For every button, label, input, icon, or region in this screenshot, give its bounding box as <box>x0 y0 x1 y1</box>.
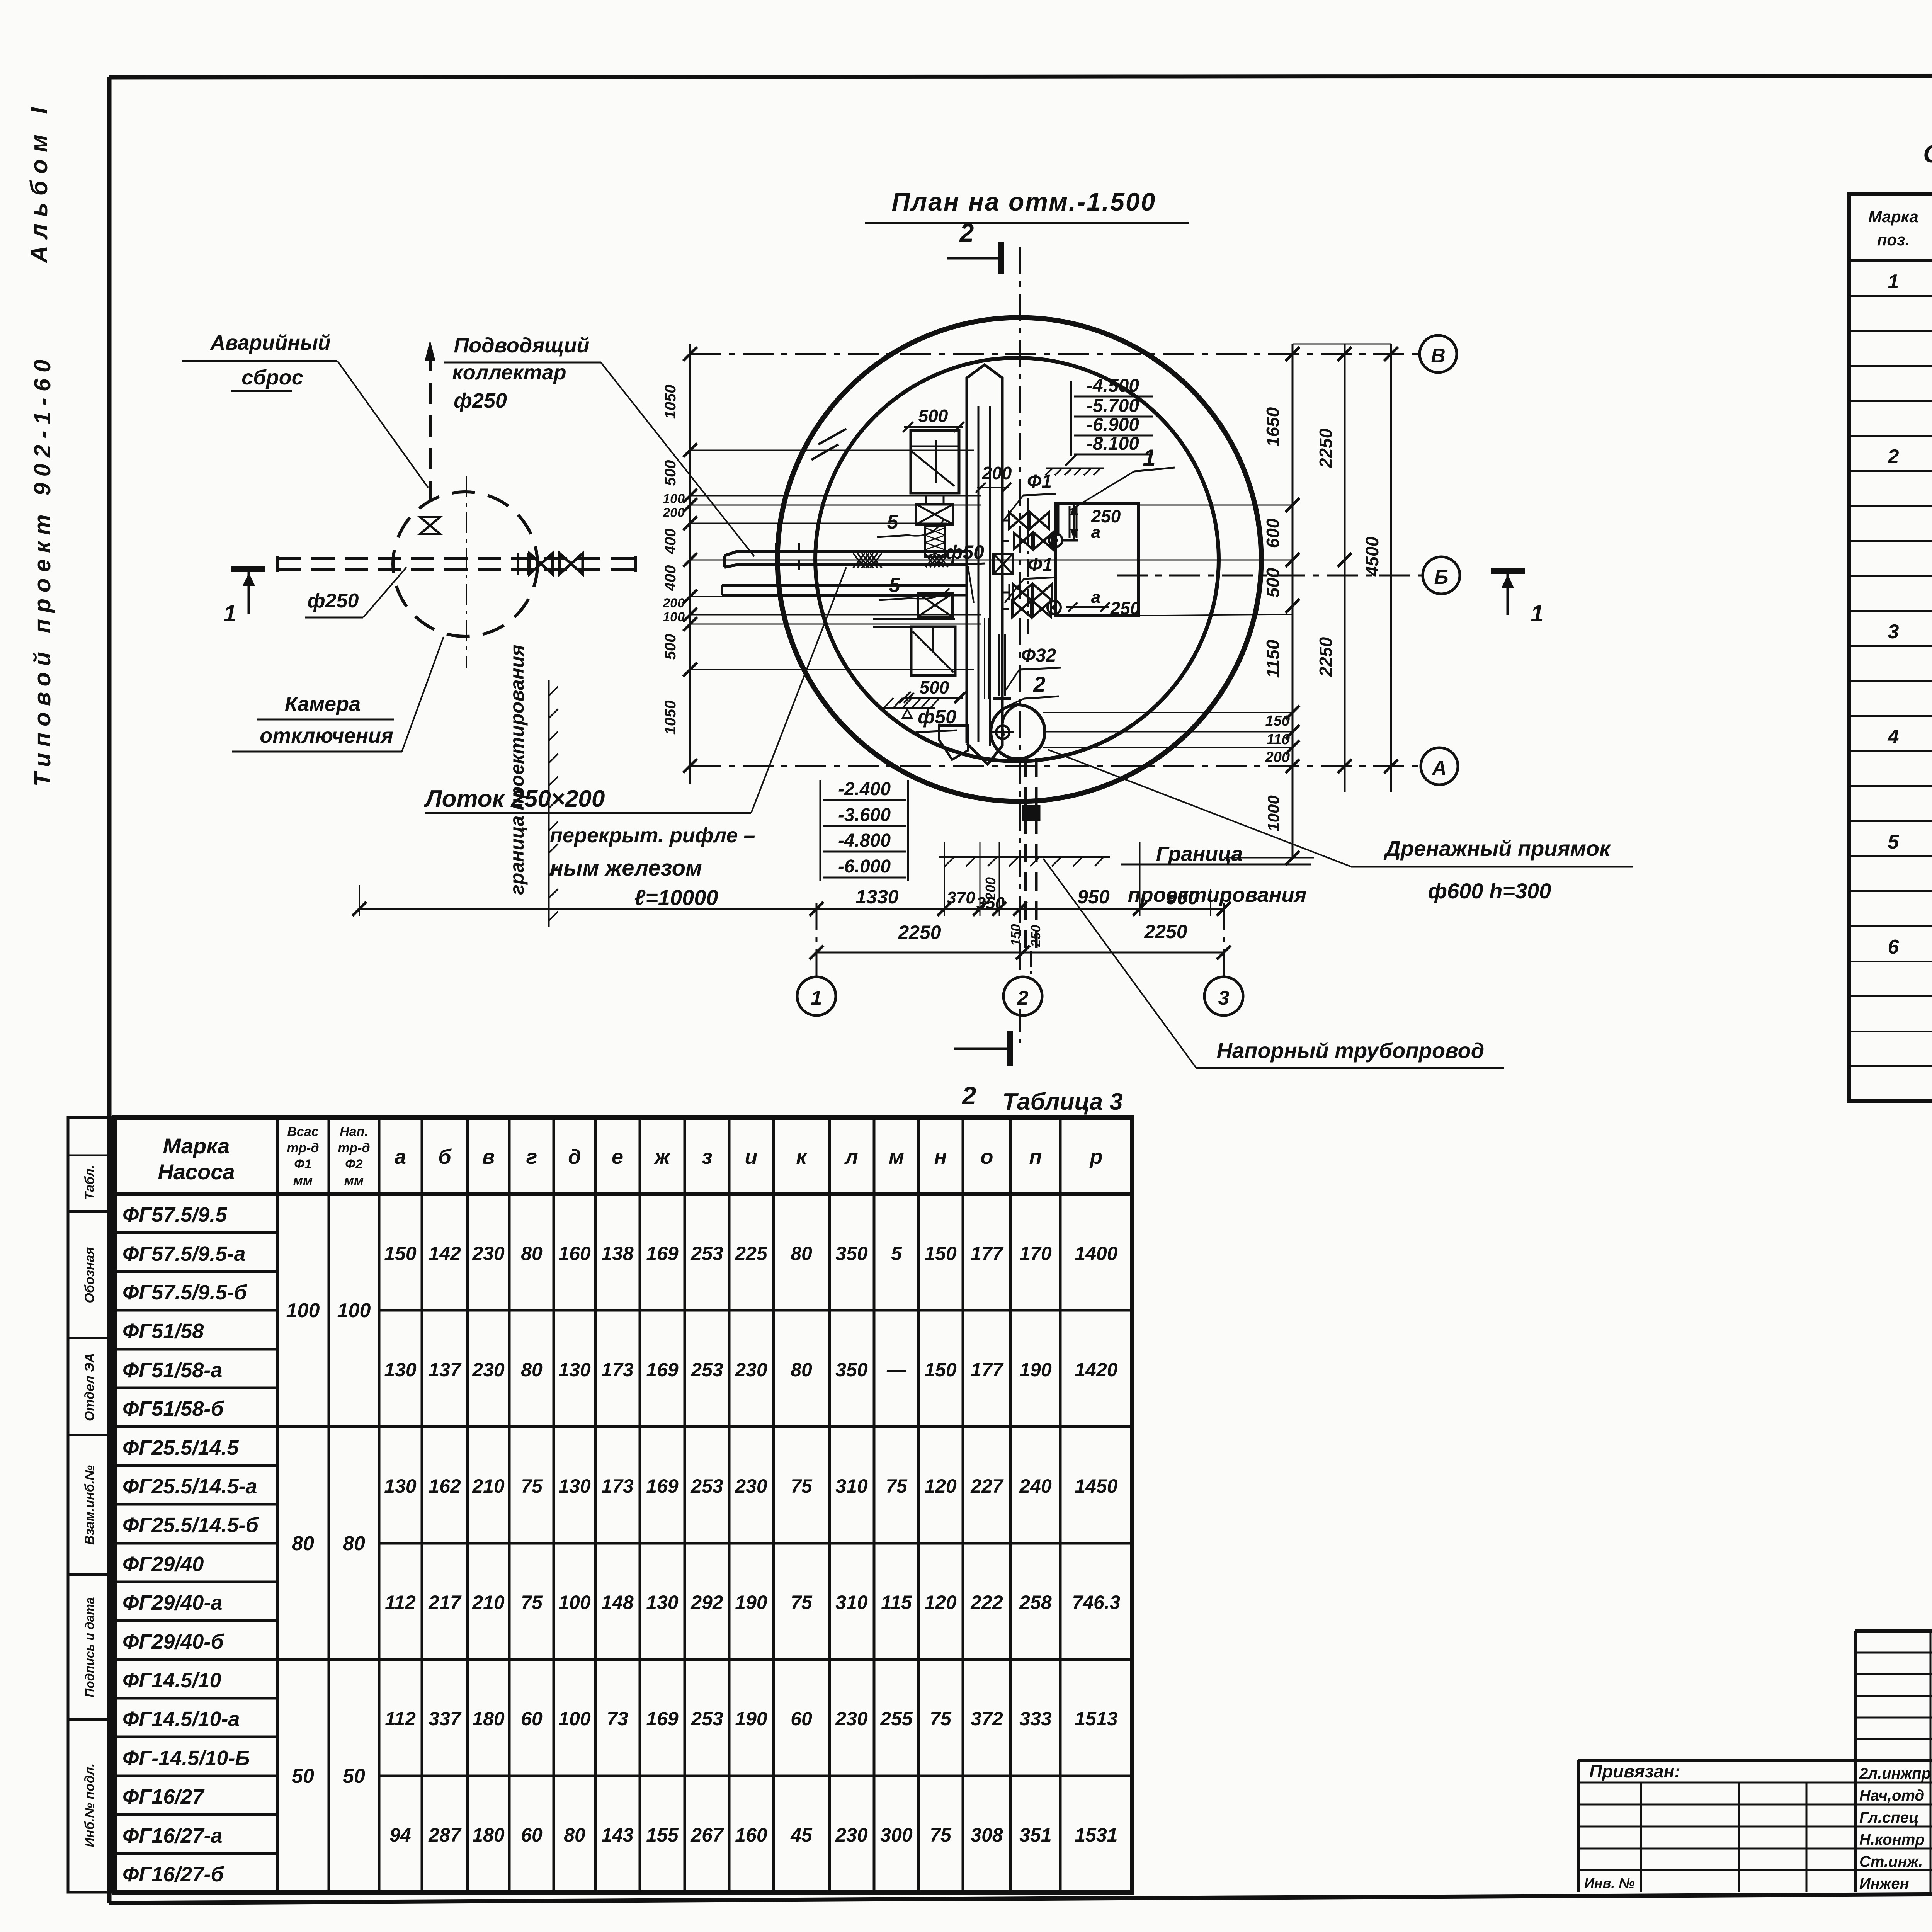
svg-text:4: 4 <box>1888 726 1899 748</box>
svg-text:162: 162 <box>429 1475 461 1497</box>
svg-text:333: 333 <box>1019 1708 1052 1730</box>
svg-text:258: 258 <box>1019 1592 1052 1613</box>
svg-text:112: 112 <box>385 1708 416 1730</box>
svg-text:Типовой проект 902-1-60: Типовой проект 902-1-60 <box>29 354 55 787</box>
svg-text:ным железом: ным железом <box>550 855 702 881</box>
svg-text:2: 2 <box>959 218 974 247</box>
svg-text:350: 350 <box>835 1359 868 1381</box>
svg-text:Ф1: Ф1 <box>294 1157 311 1172</box>
svg-text:Камера: Камера <box>285 692 361 716</box>
svg-text:Граница: Граница <box>1156 842 1243 866</box>
svg-text:112: 112 <box>385 1592 416 1613</box>
svg-text:а: а <box>395 1145 406 1168</box>
svg-text:351: 351 <box>1019 1824 1051 1846</box>
svg-text:Ф1: Ф1 <box>1028 555 1053 575</box>
svg-text:Подпись и дата: Подпись и дата <box>83 1597 97 1697</box>
svg-text:1: 1 <box>811 987 822 1009</box>
svg-text:253: 253 <box>690 1243 723 1264</box>
svg-text:сброс: сброс <box>241 366 303 389</box>
svg-text:А: А <box>1431 757 1447 779</box>
svg-text:1650: 1650 <box>1263 407 1283 447</box>
svg-text:150: 150 <box>1265 713 1290 729</box>
svg-text:ФГ16/27: ФГ16/27 <box>122 1785 205 1808</box>
svg-text:80: 80 <box>521 1243 543 1264</box>
svg-text:253: 253 <box>690 1359 723 1381</box>
svg-text:-4.500: -4.500 <box>1087 376 1139 396</box>
svg-text:Обозная: Обозная <box>82 1247 97 1303</box>
svg-text:м: м <box>889 1145 904 1168</box>
svg-text:210: 210 <box>472 1475 505 1497</box>
svg-text:337: 337 <box>429 1708 462 1730</box>
svg-text:ФГ51/58: ФГ51/58 <box>122 1320 204 1343</box>
svg-text:500: 500 <box>918 406 948 426</box>
svg-text:-5.700: -5.700 <box>1087 396 1139 416</box>
svg-text:а: а <box>1091 523 1100 542</box>
svg-text:75: 75 <box>886 1475 908 1497</box>
svg-text:ФГ16/27-а: ФГ16/27-а <box>122 1824 222 1847</box>
svg-text:Ст.инж.: Ст.инж. <box>1859 1853 1923 1870</box>
svg-text:Дренажный приямок: Дренажный приямок <box>1383 836 1611 861</box>
svg-text:ФГ25.5/14.5-а: ФГ25.5/14.5-а <box>122 1475 257 1498</box>
svg-text:4500: 4500 <box>1362 536 1382 577</box>
svg-text:тр-д: тр-д <box>338 1141 370 1155</box>
svg-text:169: 169 <box>646 1475 679 1497</box>
svg-text:3: 3 <box>1218 987 1230 1009</box>
svg-text:ФГ57.5/9.5: ФГ57.5/9.5 <box>122 1203 227 1226</box>
svg-text:217: 217 <box>428 1592 462 1613</box>
svg-text:ФГ51/58-б: ФГ51/58-б <box>122 1397 224 1420</box>
svg-text:Привязан:: Привязан: <box>1589 1761 1680 1781</box>
svg-text:500: 500 <box>662 634 679 660</box>
svg-text:-2.400: -2.400 <box>838 779 891 799</box>
svg-text:ФГ57.5/9.5-б: ФГ57.5/9.5-б <box>122 1281 247 1304</box>
svg-text:45: 45 <box>790 1824 813 1846</box>
svg-text:60: 60 <box>521 1708 543 1730</box>
svg-text:115: 115 <box>881 1592 912 1613</box>
svg-text:500: 500 <box>920 677 949 697</box>
svg-text:310: 310 <box>835 1592 868 1613</box>
svg-text:р: р <box>1089 1145 1103 1168</box>
svg-text:проектирования: проектирования <box>1128 883 1307 906</box>
svg-text:230: 230 <box>735 1475 767 1497</box>
svg-text:1420: 1420 <box>1075 1359 1117 1381</box>
svg-text:и: и <box>745 1145 758 1168</box>
svg-text:ф250: ф250 <box>308 590 359 612</box>
svg-text:150: 150 <box>1009 924 1023 946</box>
svg-text:тр-д: тр-д <box>287 1141 319 1155</box>
svg-text:2: 2 <box>1888 446 1899 468</box>
svg-text:227: 227 <box>970 1475 1004 1497</box>
svg-text:80: 80 <box>791 1359 812 1381</box>
svg-text:3: 3 <box>1888 621 1899 643</box>
svg-text:80: 80 <box>292 1532 314 1555</box>
svg-text:253: 253 <box>690 1708 723 1730</box>
svg-text:1450: 1450 <box>1075 1475 1117 1497</box>
svg-text:130: 130 <box>558 1475 591 1497</box>
svg-text:1: 1 <box>1143 445 1155 471</box>
svg-text:ФГ25.5/14.5-б: ФГ25.5/14.5-б <box>122 1514 259 1537</box>
svg-text:5: 5 <box>1888 831 1900 853</box>
svg-text:Напорный трубопровод: Напорный трубопровод <box>1217 1038 1485 1063</box>
svg-text:ф50: ф50 <box>918 706 956 728</box>
svg-text:Нап.: Нап. <box>340 1124 368 1139</box>
svg-text:170: 170 <box>1019 1243 1052 1264</box>
svg-text:ФГ29/40: ФГ29/40 <box>122 1553 204 1576</box>
svg-text:100: 100 <box>558 1592 591 1613</box>
svg-text:200: 200 <box>1265 749 1290 765</box>
svg-text:210: 210 <box>472 1592 505 1613</box>
svg-text:поз.: поз. <box>1877 231 1910 249</box>
svg-text:5: 5 <box>891 1243 902 1264</box>
svg-text:-6.900: -6.900 <box>1087 415 1139 435</box>
svg-text:500: 500 <box>662 460 679 486</box>
svg-text:1513: 1513 <box>1075 1708 1117 1730</box>
svg-text:Взам.инб.№: Взам.инб.№ <box>82 1465 97 1545</box>
svg-text:120: 120 <box>924 1592 957 1613</box>
svg-text:ФГ-14.5/10-Б: ФГ-14.5/10-Б <box>122 1747 250 1770</box>
svg-text:75: 75 <box>930 1708 952 1730</box>
svg-text:230: 230 <box>472 1359 505 1381</box>
svg-text:Гл.спец: Гл.спец <box>1859 1809 1919 1826</box>
svg-text:2250: 2250 <box>1144 921 1187 942</box>
svg-text:100: 100 <box>286 1299 320 1322</box>
svg-text:230: 230 <box>735 1359 767 1381</box>
svg-text:130: 130 <box>384 1475 417 1497</box>
svg-text:2250: 2250 <box>898 922 941 943</box>
svg-text:80: 80 <box>343 1532 365 1555</box>
svg-text:б: б <box>438 1145 452 1168</box>
svg-text:80: 80 <box>791 1243 812 1264</box>
svg-text:80: 80 <box>521 1359 543 1381</box>
svg-text:ФГ29/40-б: ФГ29/40-б <box>122 1630 224 1653</box>
svg-text:160: 160 <box>558 1243 591 1264</box>
svg-text:Инв. №: Инв. № <box>1584 1875 1635 1891</box>
svg-text:1400: 1400 <box>1075 1243 1117 1264</box>
svg-text:400: 400 <box>662 529 679 555</box>
svg-text:240: 240 <box>1019 1475 1052 1497</box>
svg-text:190: 190 <box>1019 1359 1052 1381</box>
svg-text:177: 177 <box>971 1359 1004 1381</box>
svg-text:75: 75 <box>521 1475 543 1497</box>
svg-text:200: 200 <box>662 505 685 520</box>
svg-text:1330: 1330 <box>855 886 898 908</box>
svg-text:60: 60 <box>521 1824 543 1846</box>
svg-text:300: 300 <box>880 1824 913 1846</box>
svg-text:130: 130 <box>558 1359 591 1381</box>
svg-text:950: 950 <box>1077 886 1110 908</box>
svg-text:230: 230 <box>835 1824 868 1846</box>
svg-text:400: 400 <box>662 565 679 592</box>
svg-text:137: 137 <box>429 1359 462 1381</box>
svg-text:75: 75 <box>930 1824 952 1846</box>
svg-text:150: 150 <box>384 1243 417 1264</box>
svg-text:н: н <box>934 1145 947 1168</box>
svg-text:ФГ14.5/10-а: ФГ14.5/10-а <box>122 1708 240 1731</box>
svg-text:267: 267 <box>690 1824 724 1846</box>
svg-text:1: 1 <box>1888 270 1899 293</box>
svg-text:120: 120 <box>924 1475 957 1497</box>
svg-text:Б: Б <box>1434 566 1449 588</box>
svg-text:1: 1 <box>223 600 236 626</box>
svg-text:Инжен: Инжен <box>1859 1875 1909 1892</box>
svg-text:Ф32: Ф32 <box>1021 645 1056 666</box>
svg-text:230: 230 <box>835 1708 868 1730</box>
svg-text:Н.контр: Н.контр <box>1859 1831 1925 1848</box>
svg-text:Таблица 3: Таблица 3 <box>1002 1088 1123 1115</box>
svg-text:ф250: ф250 <box>454 389 507 412</box>
svg-text:2250: 2250 <box>1316 428 1336 468</box>
svg-text:222: 222 <box>970 1592 1003 1613</box>
svg-text:ж: ж <box>653 1145 671 1168</box>
svg-text:в: в <box>482 1145 495 1168</box>
svg-text:1050: 1050 <box>662 701 679 735</box>
svg-text:173: 173 <box>601 1475 634 1497</box>
svg-text:180: 180 <box>472 1708 505 1730</box>
svg-text:отключения: отключения <box>260 724 393 747</box>
svg-text:287: 287 <box>428 1824 462 1846</box>
svg-text:ф600 h=300: ф600 h=300 <box>1428 879 1551 903</box>
svg-text:253: 253 <box>690 1475 723 1497</box>
svg-text:ФГ57.5/9.5-а: ФГ57.5/9.5-а <box>122 1242 246 1265</box>
svg-text:2250: 2250 <box>1316 637 1336 677</box>
svg-text:—: — <box>886 1359 906 1381</box>
svg-text:Лоток 250×200: Лоток 250×200 <box>424 786 605 812</box>
svg-text:1: 1 <box>1531 600 1543 626</box>
svg-text:1531: 1531 <box>1075 1824 1117 1846</box>
svg-text:292: 292 <box>690 1592 723 1613</box>
svg-text:о: о <box>981 1145 993 1168</box>
svg-text:75: 75 <box>791 1592 813 1613</box>
svg-text:110: 110 <box>1266 731 1290 748</box>
svg-text:148: 148 <box>601 1592 634 1613</box>
svg-text:Табл.: Табл. <box>82 1165 97 1200</box>
svg-text:ФГ25.5/14.5: ФГ25.5/14.5 <box>122 1436 239 1459</box>
svg-text:1150: 1150 <box>1263 639 1283 678</box>
svg-text:94: 94 <box>389 1824 411 1846</box>
svg-text:1050: 1050 <box>662 385 679 419</box>
svg-text:100: 100 <box>663 492 685 506</box>
svg-text:746.3: 746.3 <box>1072 1592 1120 1613</box>
svg-text:ℓ=10000: ℓ=10000 <box>634 885 718 910</box>
svg-text:150: 150 <box>924 1359 957 1381</box>
svg-text:150: 150 <box>924 1243 957 1264</box>
svg-text:155: 155 <box>646 1824 679 1846</box>
svg-text:73: 73 <box>607 1708 628 1730</box>
svg-text:100: 100 <box>663 610 685 624</box>
svg-text:Аварийный: Аварийный <box>209 331 331 354</box>
svg-text:План на отм.-1.500: План на отм.-1.500 <box>892 187 1156 216</box>
svg-text:ФГ51/58-а: ФГ51/58-а <box>122 1359 222 1382</box>
svg-text:75: 75 <box>791 1475 813 1497</box>
svg-text:мм: мм <box>293 1173 313 1188</box>
svg-text:190: 190 <box>735 1708 767 1730</box>
svg-text:-6.000: -6.000 <box>838 856 891 877</box>
svg-text:к: к <box>796 1145 808 1168</box>
svg-text:Ф2: Ф2 <box>345 1157 363 1172</box>
svg-text:350: 350 <box>976 894 1005 913</box>
svg-text:Альбом I: Альбом I <box>26 100 53 264</box>
svg-text:-8.100: -8.100 <box>1087 434 1139 454</box>
svg-text:75: 75 <box>521 1592 543 1613</box>
svg-text:6: 6 <box>1888 936 1900 958</box>
svg-text:1000: 1000 <box>1264 795 1282 831</box>
svg-text:2л.инжпр: 2л.инжпр <box>1859 1765 1931 1782</box>
svg-text:130: 130 <box>384 1359 417 1381</box>
svg-text:169: 169 <box>646 1243 679 1264</box>
svg-text:-3.600: -3.600 <box>838 805 891 825</box>
svg-text:143: 143 <box>601 1824 634 1846</box>
svg-text:Всас: Всас <box>287 1124 318 1139</box>
svg-text:255: 255 <box>880 1708 913 1730</box>
svg-text:169: 169 <box>646 1708 679 1730</box>
svg-text:230: 230 <box>472 1243 505 1264</box>
svg-text:142: 142 <box>429 1243 461 1264</box>
svg-text:600: 600 <box>1263 518 1283 548</box>
svg-text:Марка: Марка <box>1868 207 1918 226</box>
svg-text:а: а <box>1091 588 1100 607</box>
svg-text:50: 50 <box>343 1765 365 1787</box>
svg-text:370: 370 <box>947 888 975 907</box>
svg-text:100: 100 <box>558 1708 591 1730</box>
svg-text:500: 500 <box>1263 568 1283 597</box>
svg-text:д: д <box>568 1145 581 1168</box>
svg-text:ФГ16/27-б: ФГ16/27-б <box>122 1863 224 1886</box>
svg-text:Инб.№ подл.: Инб.№ подл. <box>82 1763 97 1847</box>
svg-text:138: 138 <box>601 1243 634 1264</box>
svg-text:коллектар: коллектар <box>452 361 566 384</box>
svg-text:л: л <box>844 1145 858 1168</box>
svg-text:е: е <box>612 1145 623 1168</box>
svg-text:310: 310 <box>835 1475 868 1497</box>
svg-text:350: 350 <box>835 1243 868 1264</box>
svg-text:225: 225 <box>735 1243 768 1264</box>
svg-text:Подводящий: Подводящий <box>454 334 589 357</box>
svg-text:-4.800: -4.800 <box>838 830 891 851</box>
svg-text:180: 180 <box>472 1824 505 1846</box>
svg-text:100: 100 <box>337 1299 371 1322</box>
svg-text:Марка: Марка <box>163 1134 230 1158</box>
svg-text:з: з <box>702 1145 713 1168</box>
svg-text:Отдел ЭА: Отдел ЭА <box>82 1353 97 1421</box>
svg-text:5: 5 <box>887 511 899 533</box>
svg-text:130: 130 <box>646 1592 679 1613</box>
svg-text:В: В <box>1431 345 1446 367</box>
svg-text:177: 177 <box>971 1243 1004 1264</box>
svg-text:50: 50 <box>292 1765 314 1787</box>
svg-text:308: 308 <box>971 1824 1003 1846</box>
svg-text:г: г <box>526 1145 537 1168</box>
svg-text:Ф1: Ф1 <box>1027 471 1052 492</box>
svg-text:160: 160 <box>735 1824 767 1846</box>
svg-text:190: 190 <box>735 1592 767 1613</box>
svg-text:169: 169 <box>646 1359 679 1381</box>
svg-text:2: 2 <box>1017 987 1029 1009</box>
svg-text:ФГ14.5/10: ФГ14.5/10 <box>122 1669 221 1692</box>
svg-text:Спецификация технологического: Спецификация технологического оборудован… <box>1923 140 1932 168</box>
svg-text:Нач,отд: Нач,отд <box>1859 1787 1924 1804</box>
svg-text:граница проектирования: граница проектирования <box>506 645 528 895</box>
svg-text:2: 2 <box>1033 672 1045 696</box>
svg-text:80: 80 <box>564 1824 585 1846</box>
svg-text:372: 372 <box>971 1708 1003 1730</box>
svg-text:мм: мм <box>344 1173 364 1188</box>
svg-text:п: п <box>1029 1145 1042 1168</box>
svg-text:200: 200 <box>662 596 685 611</box>
svg-text:2: 2 <box>961 1081 976 1110</box>
svg-text:173: 173 <box>601 1359 634 1381</box>
svg-text:ФГ29/40-а: ФГ29/40-а <box>122 1591 222 1614</box>
svg-text:Насоса: Насоса <box>158 1160 235 1184</box>
svg-text:перекрыт. рифле –: перекрыт. рифле – <box>550 824 755 847</box>
svg-text:60: 60 <box>791 1708 812 1730</box>
svg-text:200: 200 <box>982 463 1012 483</box>
